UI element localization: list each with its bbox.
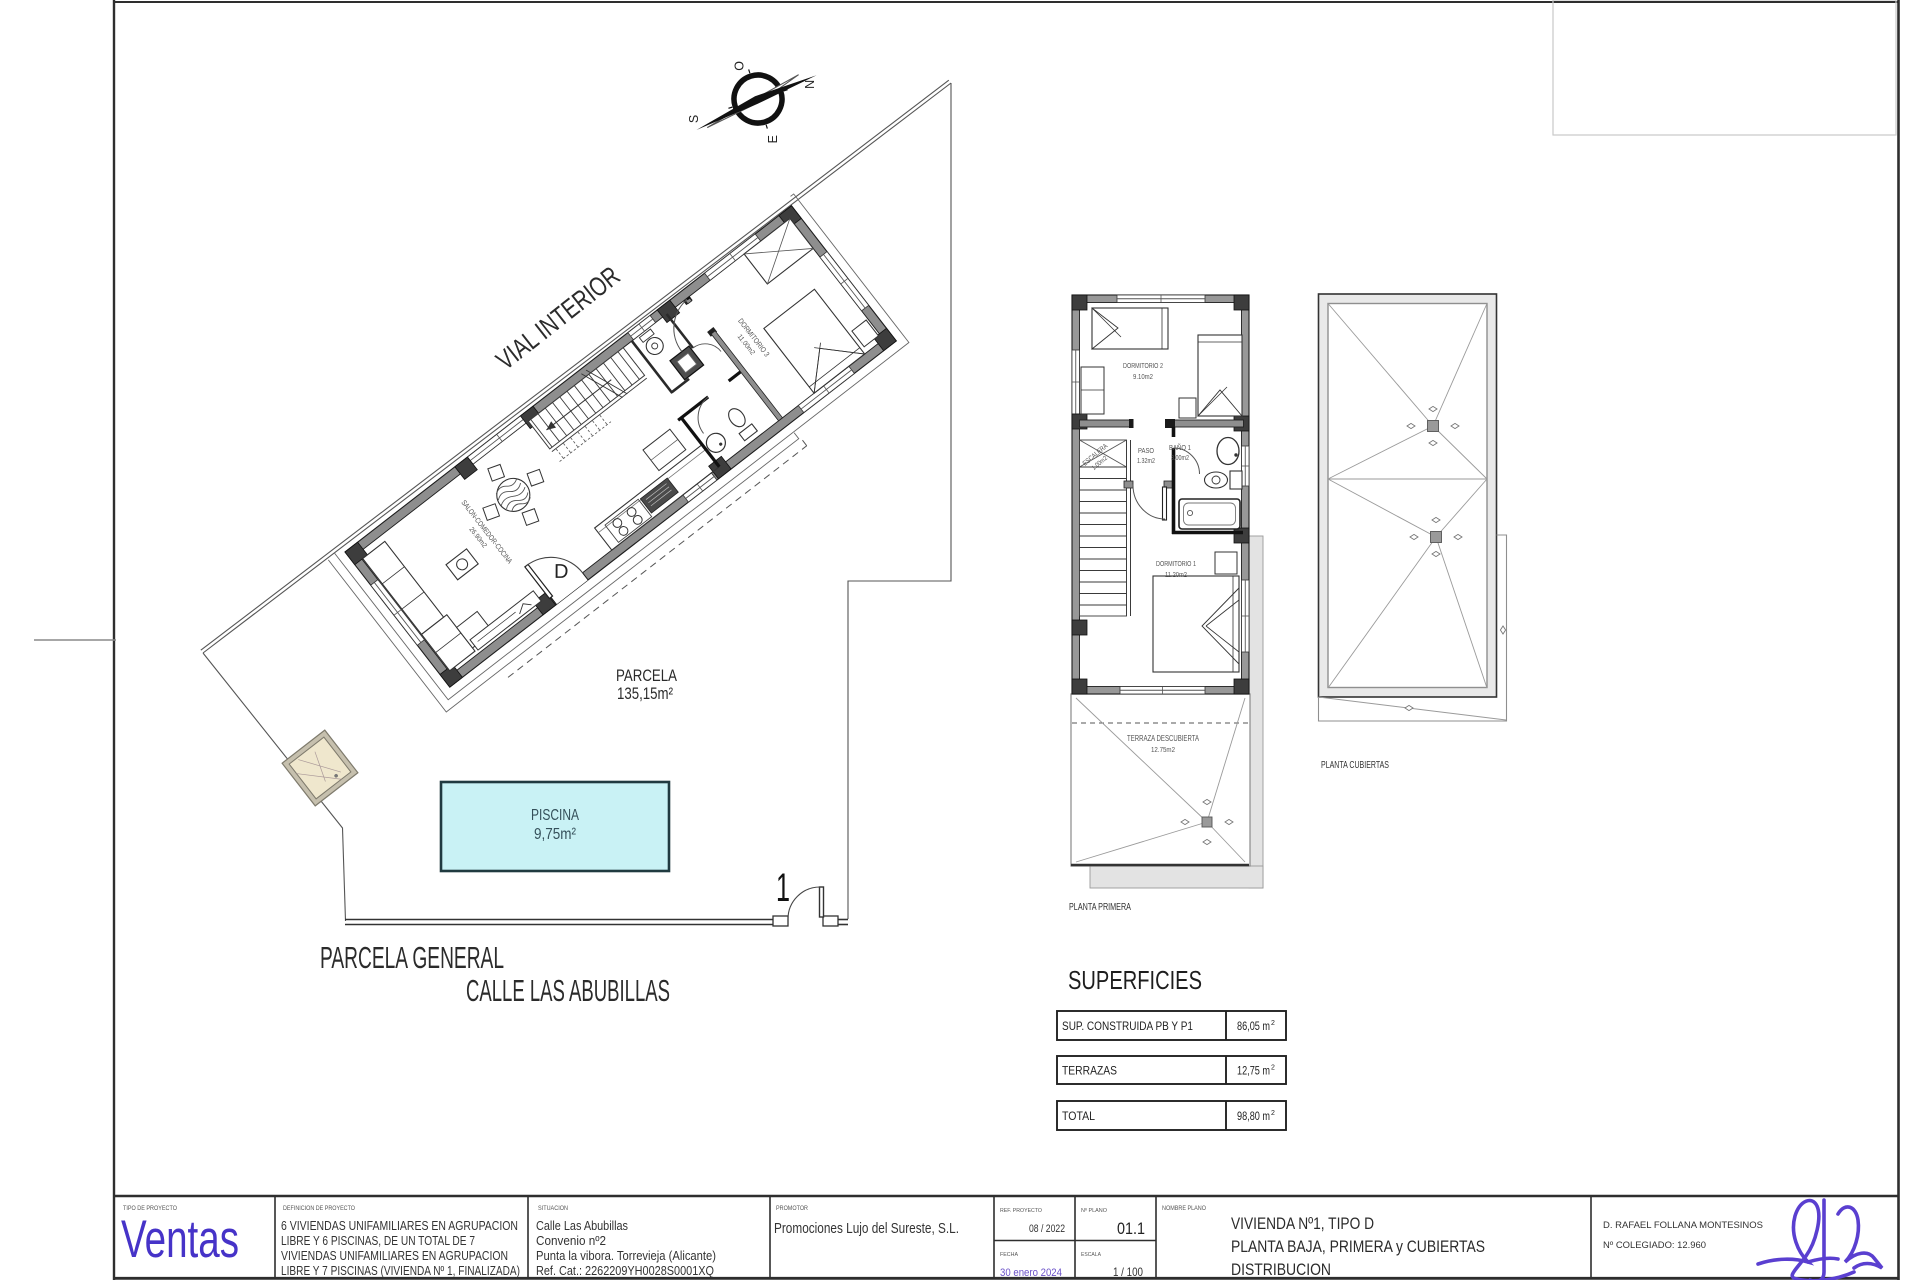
- svg-text:PROMOTOR: PROMOTOR: [776, 1206, 809, 1212]
- svg-text:135,15m²: 135,15m²: [617, 684, 673, 703]
- svg-text:6 VIVIENDAS UNIFAMILIARES EN A: 6 VIVIENDAS UNIFAMILIARES EN AGRUPACION: [281, 1219, 518, 1233]
- svg-text:Promociones Lujo del Sureste,: Promociones Lujo del Sureste, S.L.: [774, 1221, 959, 1237]
- svg-text:FECHA: FECHA: [1000, 1252, 1018, 1258]
- svg-text:08 / 2022: 08 / 2022: [1029, 1223, 1065, 1235]
- svg-text:REF. PROYECTO: REF. PROYECTO: [1000, 1208, 1043, 1214]
- svg-text:12,75 m: 12,75 m: [1237, 1066, 1270, 1078]
- svg-text:E: E: [766, 135, 780, 143]
- svg-text:PLANTA BAJA, PRIMERA y CUBIERT: PLANTA BAJA, PRIMERA y CUBIERTAS: [1231, 1237, 1485, 1256]
- svg-text:Convenio nº2: Convenio nº2: [536, 1234, 606, 1248]
- svg-text:1 / 100: 1 / 100: [1113, 1265, 1143, 1279]
- svg-text:D. RAFAEL FOLLANA MONTESINOS: D. RAFAEL FOLLANA MONTESINOS: [1603, 1220, 1763, 1231]
- svg-text:DEFINICION DE PROYECTO: DEFINICION DE PROYECTO: [283, 1206, 355, 1212]
- svg-text:11.20m2: 11.20m2: [1165, 572, 1187, 579]
- svg-text:98,80 m: 98,80 m: [1237, 1111, 1270, 1123]
- svg-text:2: 2: [1271, 1020, 1275, 1027]
- svg-text:12.75m2: 12.75m2: [1151, 745, 1175, 754]
- svg-text:N: N: [803, 80, 817, 89]
- svg-text:DORMITORIO 1: DORMITORIO 1: [1156, 559, 1196, 568]
- svg-text:2: 2: [1271, 1110, 1275, 1117]
- svg-text:PASO: PASO: [1138, 448, 1154, 455]
- svg-text:S: S: [687, 115, 701, 123]
- svg-text:O: O: [732, 61, 746, 71]
- svg-text:PLANTA PRIMERA: PLANTA PRIMERA: [1069, 901, 1131, 913]
- svg-text:Ventas: Ventas: [121, 1210, 239, 1269]
- svg-text:Ref. Cat.: 2262209YH0028S0001X: Ref. Cat.: 2262209YH0028S0001XQ: [536, 1264, 714, 1278]
- svg-text:PARCELA: PARCELA: [616, 666, 678, 685]
- svg-text:D: D: [554, 561, 569, 583]
- svg-text:SUPERFICIES: SUPERFICIES: [1068, 965, 1202, 995]
- svg-text:CALLE LAS ABUBILLAS: CALLE LAS ABUBILLAS: [466, 973, 670, 1008]
- svg-text:Calle Las Abubillas: Calle Las Abubillas: [536, 1219, 628, 1233]
- svg-text:9,75m²: 9,75m²: [534, 826, 577, 843]
- svg-text:01.1: 01.1: [1117, 1220, 1145, 1238]
- svg-text:VIVIENDA Nº1, TIPO D: VIVIENDA Nº1, TIPO D: [1231, 1214, 1374, 1233]
- svg-text:DISTRIBUCION: DISTRIBUCION: [1231, 1260, 1331, 1279]
- svg-text:NOMBRE PLANO: NOMBRE PLANO: [1162, 1206, 1206, 1212]
- svg-text:PARCELA GENERAL: PARCELA GENERAL: [320, 940, 504, 975]
- svg-text:SUP. CONSTRUIDA PB Y P1: SUP. CONSTRUIDA PB Y P1: [1062, 1021, 1193, 1033]
- svg-text:ESCALA: ESCALA: [1081, 1252, 1101, 1258]
- svg-text:LIBRE Y 7 PISCINAS (VIVIENDA N: LIBRE Y 7 PISCINAS (VIVIENDA Nº 1, FINAL…: [281, 1264, 520, 1278]
- svg-text:TERRAZAS: TERRAZAS: [1062, 1066, 1117, 1078]
- svg-text:3.00m2: 3.00m2: [1171, 455, 1189, 462]
- svg-text:PISCINA: PISCINA: [531, 807, 579, 824]
- svg-text:SITUACION: SITUACION: [538, 1206, 568, 1212]
- svg-text:30 enero 2024: 30 enero 2024: [1000, 1267, 1062, 1279]
- svg-text:BAÑO 1: BAÑO 1: [1169, 443, 1191, 452]
- svg-text:1.32m2: 1.32m2: [1137, 458, 1155, 465]
- svg-text:Punta la vibora. Torrevieja (A: Punta la vibora. Torrevieja (Alicante): [536, 1249, 716, 1263]
- svg-text:PLANTA CUBIERTAS: PLANTA CUBIERTAS: [1321, 759, 1389, 771]
- svg-text:VIVIENDAS UNIFAMILIARES EN AGR: VIVIENDAS UNIFAMILIARES EN AGRUPACION: [281, 1249, 508, 1263]
- svg-text:TERRAZA DESCUBIERTA: TERRAZA DESCUBIERTA: [1127, 734, 1199, 743]
- svg-text:LIBRE Y 6 PISCINAS, DE UN TOTA: LIBRE Y 6 PISCINAS, DE UN TOTAL DE 7: [281, 1234, 475, 1248]
- svg-text:TOTAL: TOTAL: [1062, 1111, 1096, 1123]
- svg-text:2: 2: [1271, 1065, 1275, 1072]
- svg-text:86,05 m: 86,05 m: [1237, 1021, 1270, 1033]
- svg-text:9.10m2: 9.10m2: [1133, 374, 1153, 381]
- svg-text:Nº PLANO: Nº PLANO: [1081, 1207, 1108, 1214]
- svg-text:DORMITORIO 2: DORMITORIO 2: [1123, 361, 1163, 370]
- svg-text:Nº COLEGIADO: 12.960: Nº COLEGIADO: 12.960: [1603, 1240, 1706, 1251]
- svg-text:1: 1: [776, 866, 790, 910]
